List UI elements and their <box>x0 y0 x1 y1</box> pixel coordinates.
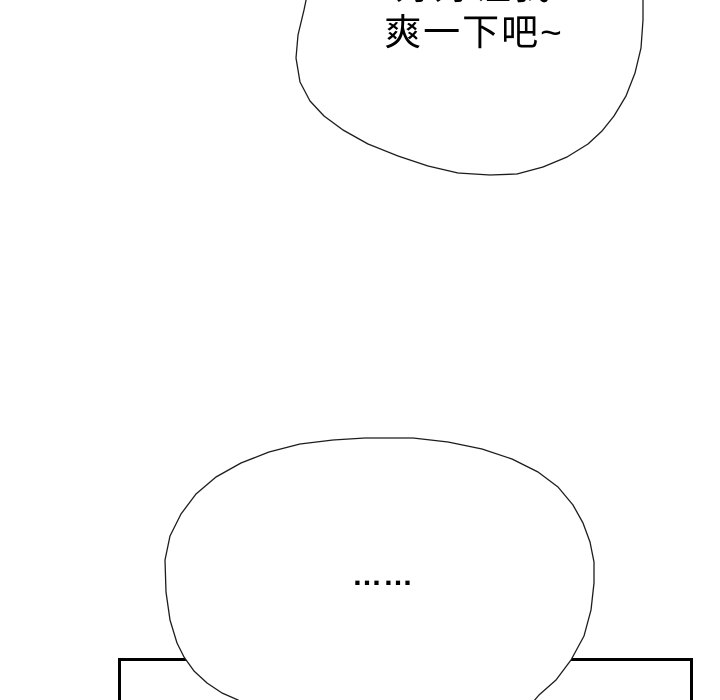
speech-text-top-line2: 爽一下吧~ <box>314 10 634 56</box>
ellipsis-text: …… <box>303 556 463 596</box>
comic-page: 好好让我 爽一下吧~ …… <box>0 0 720 700</box>
speech-text-top: 好好让我 爽一下吧~ <box>314 0 634 56</box>
speech-text-top-line1: 好好让我 <box>314 0 634 10</box>
